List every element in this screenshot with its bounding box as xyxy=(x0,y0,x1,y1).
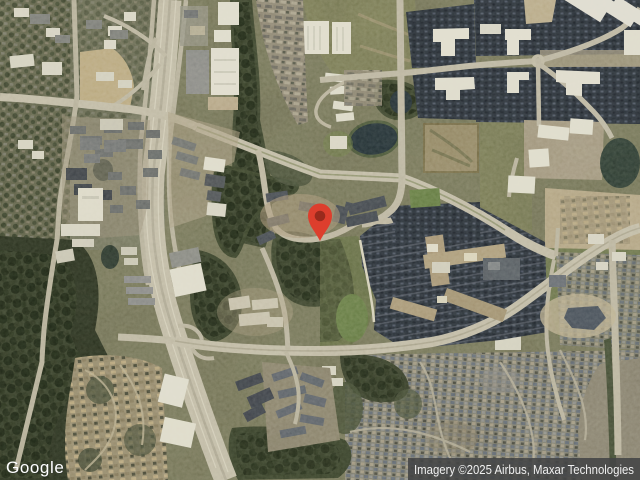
svg-text:Imagery ©2025 Airbus, Maxar Te: Imagery ©2025 Airbus, Maxar Technologies xyxy=(414,463,634,477)
svg-text:Google: Google xyxy=(6,458,64,477)
